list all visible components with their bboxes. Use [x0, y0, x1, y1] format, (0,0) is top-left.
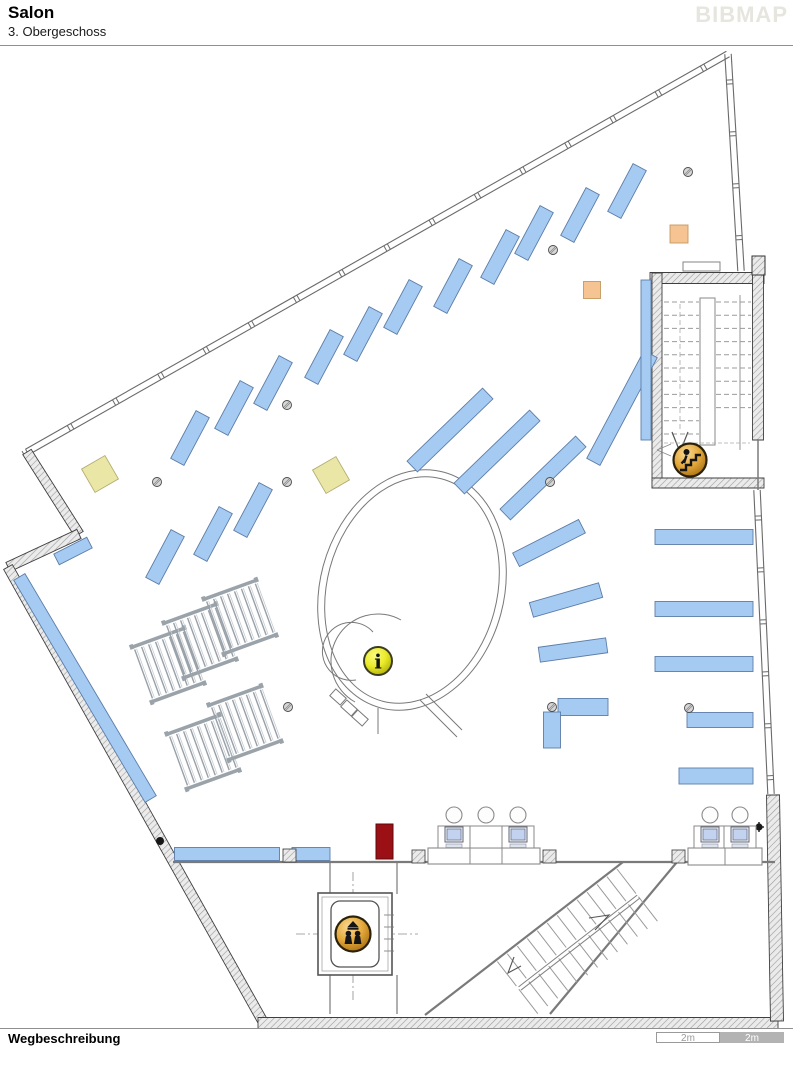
- column: [549, 246, 558, 255]
- person-head: [355, 931, 361, 937]
- window-mullion-tick: [474, 194, 477, 200]
- shelf: [14, 574, 157, 803]
- window-mullion-tick: [659, 90, 662, 96]
- shelf: [679, 768, 753, 784]
- workstation: [724, 807, 756, 848]
- shelves: [14, 164, 753, 861]
- stair-rail: [519, 895, 638, 987]
- column: [685, 704, 694, 713]
- desk-platform: [428, 848, 540, 864]
- markers: i: [336, 444, 707, 952]
- rack-rail: [187, 770, 240, 789]
- stair-step: [618, 912, 637, 937]
- rack-rung: [181, 620, 199, 669]
- rack-cap: [279, 738, 284, 744]
- workstation: [694, 807, 726, 848]
- window-wall: [725, 54, 738, 271]
- keyboard-icon: [446, 844, 462, 848]
- window-mullion-tick: [112, 400, 115, 406]
- window-mullion-tick: [432, 218, 435, 224]
- column: [546, 478, 555, 487]
- staircase-top-right: [657, 298, 751, 456]
- rack-cap: [234, 656, 239, 662]
- shelf: [655, 530, 753, 545]
- keyboard-icon: [510, 844, 526, 848]
- rack-rail: [224, 635, 277, 654]
- rack-rung: [201, 613, 219, 662]
- rack-rung: [246, 695, 264, 744]
- window-mullion-tick: [478, 192, 481, 198]
- rack-rail: [209, 686, 262, 705]
- yellow-table: [82, 456, 119, 493]
- stair-step: [607, 877, 626, 902]
- window-mullion-tick: [523, 167, 526, 173]
- desk: [470, 826, 502, 848]
- shelf: [655, 657, 753, 672]
- wall-column: [283, 849, 296, 862]
- wall: [652, 273, 662, 488]
- window-mullion-tick: [252, 321, 255, 327]
- shelf: [561, 188, 600, 243]
- column: [548, 703, 557, 712]
- wall: [767, 795, 784, 1021]
- info-desk-curve: [322, 622, 373, 680]
- shelf: [513, 520, 586, 567]
- rack-rung: [149, 644, 167, 693]
- rack-rung: [197, 726, 215, 775]
- monitor-screen: [733, 829, 747, 840]
- rack-cap: [237, 767, 242, 773]
- rack-rung: [142, 647, 160, 696]
- scale-bar: 2m 2m: [656, 1032, 784, 1043]
- shelf: [515, 206, 554, 261]
- rack-rung: [262, 689, 280, 738]
- stair-step: [597, 884, 616, 909]
- rack-rung: [194, 615, 212, 664]
- rack-rung: [184, 731, 202, 780]
- bibmap-logo: BIBMAP: [695, 2, 788, 28]
- person-head: [684, 449, 690, 455]
- column: [283, 478, 292, 487]
- window-mullion-tick: [342, 269, 345, 275]
- shelf: [687, 713, 753, 728]
- stair-step: [567, 908, 586, 933]
- window-mullion-tick: [704, 64, 707, 70]
- rack-cap: [202, 680, 207, 686]
- stair-step: [519, 989, 538, 1014]
- stair-rail: [700, 298, 715, 445]
- shelf: [146, 530, 185, 585]
- rack-rung: [248, 586, 266, 635]
- header: Salon 3. Obergeschoss BIBMAP: [0, 0, 793, 46]
- scale-segment-dark: 2m: [720, 1032, 784, 1043]
- rack-rail: [184, 659, 237, 678]
- stair-step: [587, 892, 606, 917]
- stair-step: [497, 962, 516, 987]
- stair-step: [569, 951, 588, 976]
- keyboard-icon: [732, 844, 748, 848]
- rack-rung: [234, 591, 252, 640]
- window-mullion-tick: [203, 348, 206, 354]
- shelf: [175, 848, 280, 861]
- newspaper-rack: [161, 601, 239, 682]
- rack-rung: [162, 639, 180, 688]
- window-mullion-tick: [610, 117, 613, 123]
- keyboard-icon: [702, 844, 718, 848]
- column: [684, 168, 693, 177]
- rack-rung: [214, 599, 232, 648]
- stair-step: [527, 938, 546, 963]
- interior-wall: [425, 862, 623, 1015]
- wall: [23, 449, 83, 536]
- window-wall: [754, 490, 768, 794]
- newspaper-rack: [206, 683, 284, 764]
- window-mullion-tick: [297, 295, 300, 301]
- window-mullion-tick: [565, 143, 568, 149]
- rack-rung: [221, 596, 239, 645]
- page: i Salon 3. Obergeschoss BIBMAP Wegbeschr…: [0, 0, 793, 1067]
- workstation: [470, 807, 502, 848]
- elevator-icon[interactable]: [336, 917, 371, 952]
- stair-step: [577, 900, 596, 925]
- window-mullion-tick: [158, 374, 161, 380]
- rack-rail: [167, 715, 220, 734]
- column: [153, 478, 162, 487]
- footer: Wegbeschreibung 2m 2m: [0, 1028, 793, 1067]
- racks: [129, 577, 284, 793]
- rack-rung: [191, 729, 209, 778]
- wall: [650, 273, 764, 284]
- corner-pillar: [752, 256, 765, 275]
- stair-step: [638, 897, 657, 922]
- door-pivot: [156, 837, 164, 845]
- monitor-screen: [447, 829, 461, 840]
- info-desk-box: [330, 689, 346, 705]
- shelf: [305, 330, 344, 385]
- wall-column: [672, 850, 685, 863]
- stair-step: [559, 958, 578, 983]
- wegbeschreibung-label: Wegbeschreibung: [8, 1031, 120, 1046]
- page-title: Salon: [8, 3, 54, 23]
- rack-rung: [241, 589, 259, 638]
- rack-cap: [161, 620, 166, 626]
- shelf: [194, 507, 233, 562]
- shelf: [608, 164, 647, 219]
- shelf: [538, 638, 607, 662]
- chair: [510, 807, 526, 823]
- stair-step: [539, 974, 558, 999]
- shelf: [641, 280, 651, 440]
- window-mullion-tick: [429, 220, 432, 226]
- scale-segment-light: 2m: [656, 1032, 720, 1043]
- window-mullion-tick: [387, 244, 390, 250]
- up-arrow-bar: [348, 928, 359, 930]
- window-mullion-tick: [67, 425, 70, 431]
- info-desk-curve: [420, 700, 457, 737]
- rack-rung: [177, 734, 195, 783]
- shelf: [500, 436, 586, 520]
- rack-rung: [255, 584, 273, 633]
- orange-box: [670, 225, 688, 243]
- shelf: [558, 699, 608, 716]
- workstations: [428, 807, 762, 865]
- shelf: [655, 602, 753, 617]
- person-head: [346, 931, 352, 937]
- rack-cap: [206, 702, 211, 708]
- stair-arrow: [508, 957, 521, 973]
- chair: [446, 807, 462, 823]
- monitor-screen: [511, 829, 525, 840]
- rack-rail: [204, 580, 257, 599]
- shelf: [384, 280, 423, 335]
- column: [284, 703, 293, 712]
- rack-rung: [253, 692, 271, 741]
- rack-cap: [129, 644, 134, 650]
- wall: [258, 1018, 778, 1029]
- wall-column: [543, 850, 556, 863]
- window-mullion-tick: [161, 372, 164, 378]
- chair: [732, 807, 748, 823]
- shelf: [234, 483, 273, 538]
- rack-rail: [152, 683, 205, 702]
- floorplan: i: [0, 0, 793, 1067]
- stair-step: [529, 982, 548, 1007]
- newspaper-rack: [129, 625, 207, 706]
- rack-cap: [201, 596, 206, 602]
- shelf: [529, 583, 602, 617]
- window-mullion-tick: [116, 398, 119, 404]
- orange-box: [584, 282, 601, 299]
- window-mullion-tick: [655, 92, 658, 98]
- rack-rung: [260, 690, 278, 739]
- shelf: [544, 712, 561, 748]
- window-mullion-tick: [613, 115, 616, 121]
- window-mullion-tick: [206, 346, 209, 352]
- stair-step: [599, 928, 618, 953]
- wall: [753, 258, 764, 440]
- hatched-walls: [4, 258, 784, 1029]
- rack-cap: [274, 632, 279, 638]
- info-icon[interactable]: i: [364, 647, 392, 675]
- shelf: [215, 381, 254, 436]
- window-mullion-tick: [384, 246, 387, 252]
- window-mullion-tick: [339, 271, 342, 277]
- rack-cap: [164, 731, 169, 737]
- monitor-screen: [703, 829, 717, 840]
- shelf: [434, 259, 473, 314]
- info-icon-glyph: i: [374, 650, 382, 674]
- shelf: [344, 307, 383, 362]
- rack-rung: [156, 642, 174, 691]
- stair-step: [557, 915, 576, 940]
- wall-door: [683, 262, 720, 271]
- rack-rung: [135, 649, 153, 698]
- window-mullion-tick: [293, 297, 296, 303]
- column: [283, 401, 292, 410]
- stair-step: [579, 943, 598, 968]
- yellow-table: [313, 457, 350, 494]
- shelf: [292, 848, 330, 861]
- window-wall: [731, 54, 744, 271]
- stair-step: [617, 869, 636, 894]
- rack-rung: [228, 594, 246, 643]
- rack-rung: [188, 618, 206, 667]
- window-mullion-tick: [248, 323, 251, 329]
- rack-rung: [239, 697, 257, 746]
- wall-column: [412, 850, 425, 863]
- wall: [652, 478, 764, 488]
- oval-shelf-ring: [300, 457, 524, 723]
- window-mullion-tick: [519, 169, 522, 175]
- stair-step: [537, 931, 556, 956]
- shelf: [481, 230, 520, 285]
- rack-rail: [229, 741, 282, 760]
- rack-rung: [170, 736, 188, 785]
- rack-rung: [233, 700, 251, 749]
- escalator-icon[interactable]: [674, 444, 707, 477]
- window-wall: [760, 490, 774, 794]
- workstation: [438, 807, 470, 848]
- window-wall: [25, 51, 726, 449]
- red-door: [376, 824, 393, 859]
- chair: [478, 807, 494, 823]
- stair-step: [547, 923, 566, 948]
- stair-step: [549, 966, 568, 991]
- rack-rung: [257, 583, 275, 632]
- workstation: [502, 807, 534, 848]
- floor-label: 3. Obergeschoss: [8, 24, 106, 39]
- chair: [702, 807, 718, 823]
- window-mullion-tick: [568, 141, 571, 147]
- window-mullion-tick: [700, 66, 703, 72]
- shelf: [171, 411, 210, 466]
- window-mullion-tick: [71, 423, 74, 429]
